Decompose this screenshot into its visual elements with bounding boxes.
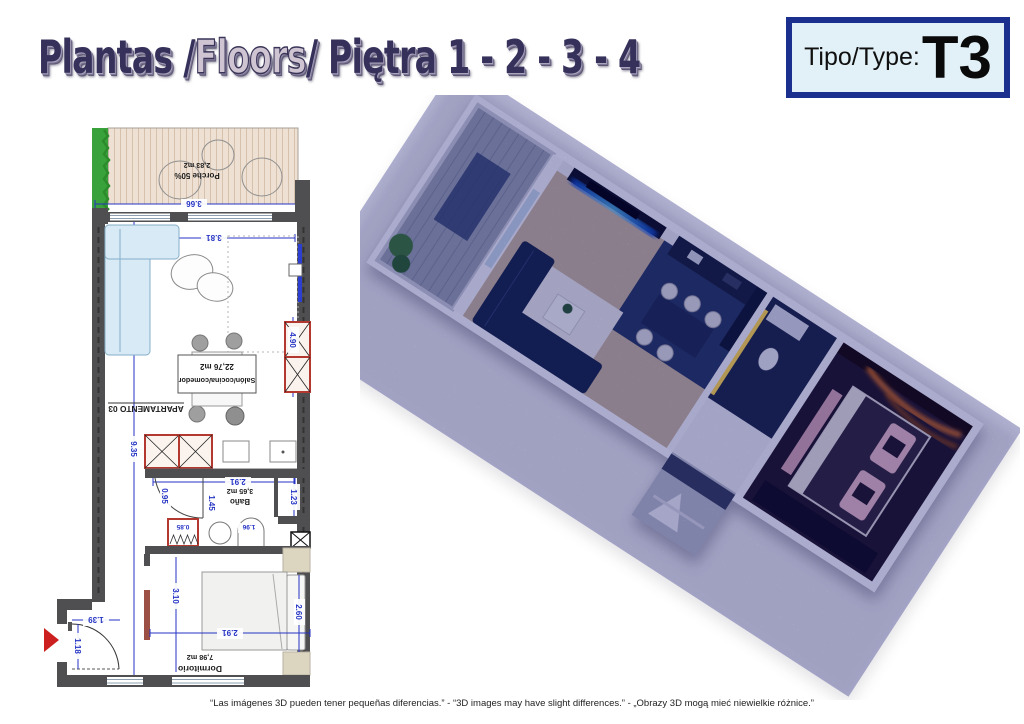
brochure-page: Plantas / Floors / Piętra 1 - 2 - 3 - 4 … [0, 0, 1024, 724]
entrance: 1.39 1.18 [44, 599, 120, 675]
dim-bath-width: 1.96 [242, 523, 255, 530]
dim-entry-door: 1.18 [73, 638, 82, 654]
footer-disclaimer: “Las imágenes 3D pueden tener pequeñas d… [0, 698, 1024, 709]
svg-text:APARTAMENTO 03: APARTAMENTO 03 [108, 404, 184, 414]
porch-name: Porche 50% [174, 171, 219, 180]
dim-bath-depth: 1.45 [207, 495, 216, 511]
living-area-value: 22,76 m2 [200, 362, 234, 371]
title-part-pietra: / Piętra 1 - 2 - 3 - 4 [306, 30, 641, 84]
bath-area-value: 3,65 m2 [227, 487, 253, 496]
dim-living-width: 3.81 [206, 233, 222, 242]
dim-apartment-depth: 9.35 [129, 441, 138, 457]
render-3d [360, 95, 1020, 700]
dim-bedroom-width: 2.91 [222, 628, 238, 637]
shaft [291, 532, 310, 548]
type-value: T3 [922, 28, 992, 88]
living-name: Salón/cocina/comedor [178, 376, 255, 385]
type-badge: Tipo/Type: T3 [786, 17, 1010, 98]
bedroom-name: Dormitorio [178, 664, 222, 674]
bedroom-area-value: 7,98 m2 [187, 653, 213, 662]
dim-kitchen-width: 2.91 [230, 477, 246, 486]
living-label: Salón/cocina/comedor 22,76 m2 [178, 355, 256, 393]
porch-area: Porche 50% 2,83 m2 3.66 [92, 128, 298, 212]
floor-plan-2d: Porche 50% 2,83 m2 3.66 [42, 112, 348, 704]
washbasin [209, 522, 231, 544]
closet: 0.85 [168, 519, 198, 546]
sink [223, 441, 249, 462]
dim-right-windows: 4.90 [288, 332, 297, 348]
apartment-label: APARTAMENTO 03 [108, 403, 184, 414]
dim-bed-wall: 2.60 [294, 604, 303, 620]
title-part-plantas: Plantas / [38, 30, 195, 84]
title-part-floors: Floors [195, 30, 306, 84]
dim-porch-width: 3.66 [186, 199, 202, 208]
dim-shower-width: 1.23 [289, 489, 298, 505]
dim-bedroom-depth: 3.10 [171, 588, 180, 604]
entrance-arrow [44, 628, 59, 652]
dim-closet-width: 0.85 [176, 523, 189, 530]
dim-entry-width: 1.39 [88, 615, 104, 624]
kitchen-counter [145, 435, 297, 469]
dim-hall-door: 0.95 [160, 488, 169, 504]
type-label: Tipo/Type: [804, 43, 920, 72]
bath-name: Baño [230, 497, 250, 506]
porch-area-value: 2,83 m2 [184, 161, 210, 170]
page-title: Plantas / Floors / Piętra 1 - 2 - 3 - 4 [38, 30, 640, 84]
